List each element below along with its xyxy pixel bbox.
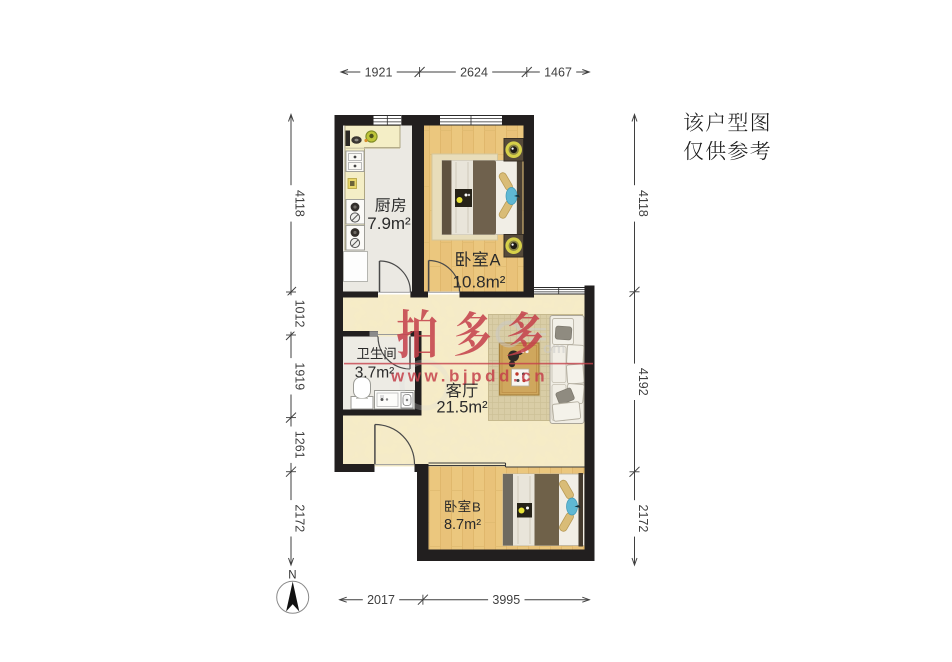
svg-text:8.7m²: 8.7m² [444, 517, 481, 533]
svg-text:1919: 1919 [293, 362, 307, 390]
svg-text:1261: 1261 [293, 431, 307, 459]
svg-text:1012: 1012 [293, 300, 307, 328]
svg-text:om: om [543, 340, 566, 357]
svg-text:3995: 3995 [492, 593, 520, 607]
svg-text:B: B [472, 499, 481, 514]
svg-text:2624: 2624 [460, 66, 488, 80]
svg-text:4118: 4118 [636, 190, 650, 217]
svg-text:1467: 1467 [544, 66, 572, 80]
svg-text:A: A [490, 252, 501, 270]
svg-text:10.8m²: 10.8m² [453, 273, 506, 292]
svg-text:21.5m²: 21.5m² [436, 399, 488, 417]
svg-text:3.7m²: 3.7m² [355, 365, 395, 382]
svg-text:7.9m²: 7.9m² [367, 214, 411, 233]
svg-text:4192: 4192 [636, 368, 650, 396]
svg-text:2017: 2017 [367, 593, 395, 607]
svg-text:N: N [288, 570, 296, 582]
svg-text:1921: 1921 [365, 66, 393, 80]
svg-text:2172: 2172 [293, 504, 307, 532]
svg-text:www.bjpdd.cn: www.bjpdd.cn [390, 367, 548, 386]
svg-text:2172: 2172 [636, 504, 650, 532]
svg-text:4118: 4118 [293, 190, 307, 217]
